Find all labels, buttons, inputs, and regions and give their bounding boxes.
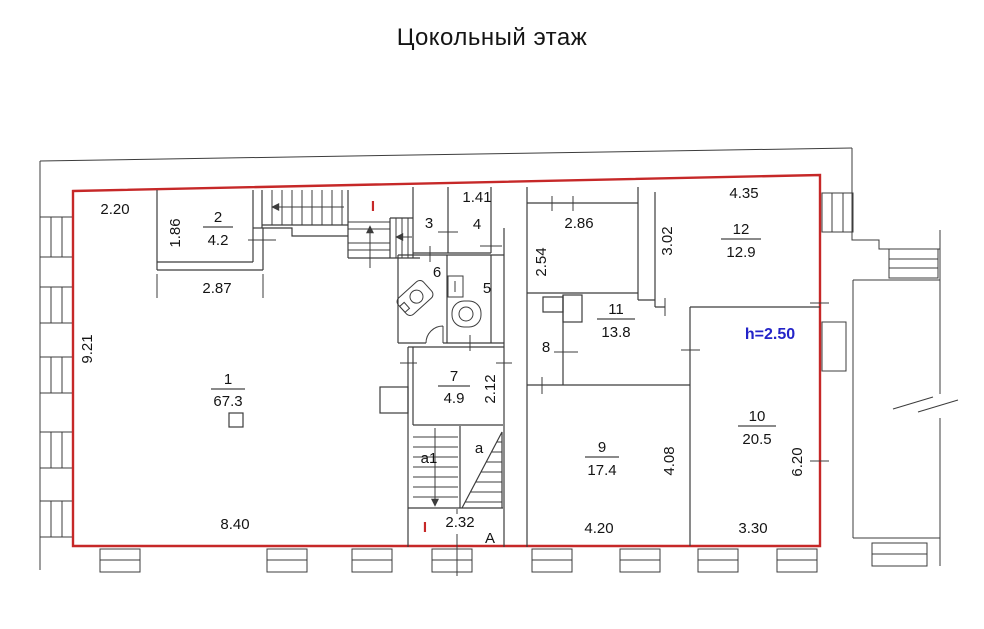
window-wing-top (889, 249, 938, 278)
room-number: 10 (749, 408, 766, 425)
break-symbol (893, 397, 958, 412)
room-label-2: 2 4.2 (203, 209, 233, 249)
dim-room10-height: 6.20 (789, 447, 806, 476)
room-number: 7 (450, 368, 458, 385)
room-label-9: 9 17.4 (585, 439, 619, 479)
dim-room9-width: 4.20 (584, 520, 613, 537)
floor-plan-page: Цокольный этаж (0, 0, 984, 629)
dim-room1-top-offset: 2.20 (100, 201, 129, 218)
entry-marker-top: I (371, 198, 375, 215)
room-number: 11 (608, 301, 624, 318)
room-number: 9 (598, 439, 606, 456)
door-swing-arc (426, 326, 443, 343)
room-number: 1 (224, 371, 232, 388)
room-label-12: 12 12.9 (721, 221, 761, 261)
dim-room9-height: 4.08 (661, 446, 678, 475)
stair-landing-flight (396, 218, 412, 258)
toilet-fixture (448, 276, 481, 327)
stair-label-a: a (475, 440, 484, 457)
room-area: 17.4 (587, 462, 616, 479)
stair-middle-flight (348, 222, 390, 268)
room-label-11: 11 13.8 (597, 301, 635, 341)
sink-fixture (395, 278, 435, 317)
measured-area-boundary (73, 175, 820, 546)
dim-room1-height: 9.21 (79, 334, 96, 363)
dim-room12-width: 4.35 (729, 185, 758, 202)
column-marker (229, 413, 243, 427)
stair-label-a1: a1 (421, 450, 438, 467)
window-bottom-row (100, 549, 817, 572)
dim-room4-width: 1.41 (462, 189, 491, 206)
room-area: 4.2 (208, 232, 229, 249)
room-label-3: 3 (425, 215, 433, 232)
window-wing-bottom (872, 543, 927, 566)
dim-hall-width: 2.86 (564, 215, 593, 232)
dim-room12-height: 3.02 (659, 226, 676, 255)
axis-marker-a: А (485, 530, 495, 547)
dim-stairwell-width: 2.32 (445, 514, 474, 531)
window-left-2 (40, 287, 73, 323)
room-area: 12.9 (726, 244, 755, 261)
room-label-5: 5 (483, 280, 491, 297)
entry-marker-bottom: I (423, 519, 427, 536)
dim-room1-width: 8.40 (220, 516, 249, 533)
room-area: 67.3 (213, 393, 242, 410)
labels: 2.20 1.86 2.87 9.21 8.40 1.41 2.86 2.54 … (79, 185, 806, 547)
dim-room2-width: 2.87 (202, 280, 231, 297)
ceiling-height-note: h=2.50 (745, 326, 795, 343)
room-number: 12 (733, 221, 750, 238)
window-left-1 (40, 217, 73, 257)
room-label-10: 10 20.5 (738, 408, 776, 448)
dim-room7-height: 2.12 (482, 374, 499, 403)
room-label-7: 7 4.9 (438, 368, 470, 407)
room-label-8: 8 (542, 339, 550, 356)
room-area: 13.8 (601, 324, 630, 341)
stairs (272, 190, 502, 508)
room-area: 20.5 (742, 431, 771, 448)
fixtures (395, 276, 481, 343)
window-left-3 (40, 357, 73, 393)
dim-room2-height: 1.86 (167, 218, 184, 247)
stair-entry-flight (272, 190, 344, 225)
room-area: 4.9 (444, 390, 465, 407)
dim-hall-height: 2.54 (533, 247, 550, 276)
floor-plan-svg: 2.20 1.86 2.87 9.21 8.40 1.41 2.86 2.54 … (0, 0, 984, 629)
dim-room10-width: 3.30 (738, 520, 767, 537)
room-label-1: 1 67.3 (211, 371, 245, 410)
window-left-4 (40, 432, 73, 468)
stair-flight-a1 (413, 426, 460, 508)
window-right-upper (822, 193, 853, 232)
room-label-6: 6 (433, 264, 441, 281)
room-label-4: 4 (473, 216, 481, 233)
room-number: 2 (214, 209, 222, 226)
window-left-5 (40, 501, 73, 537)
